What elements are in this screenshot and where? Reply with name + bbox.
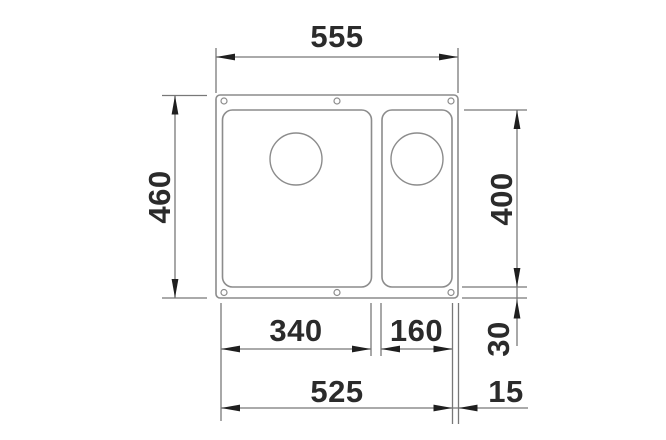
fixing-hole	[221, 290, 227, 296]
fixing-hole	[334, 98, 340, 104]
arrow-down-icon	[514, 268, 521, 287]
main-bowl	[223, 110, 372, 287]
dimension-arrows	[172, 54, 521, 412]
dimension-lines	[162, 48, 528, 424]
arrow-right-icon	[352, 346, 371, 353]
dim-label-overall-width: 555	[310, 19, 363, 54]
technical-drawing-canvas: 555 460 400 30 340 160 525 15	[0, 0, 666, 440]
fixing-hole	[448, 98, 454, 104]
arrow-right-icon	[439, 54, 458, 61]
dim-label-edge-offset-vertical: 30	[481, 321, 516, 356]
arrow-up-icon	[514, 300, 521, 319]
arrow-left-icon	[459, 405, 478, 412]
arrow-up-icon	[172, 96, 179, 115]
fixing-hole	[448, 290, 454, 296]
arrow-left-icon	[221, 405, 240, 412]
main-bowl-drain-hole	[270, 133, 322, 185]
sink-dimension-diagram: 555 460 400 30 340 160 525 15	[0, 0, 666, 440]
arrow-down-icon	[172, 279, 179, 298]
dimension-labels: 555 460 400 30 340 160 525 15	[142, 19, 524, 409]
arrow-up-icon	[514, 110, 521, 129]
arrow-left-icon	[221, 346, 240, 353]
fixing-hole	[221, 98, 227, 104]
fixing-hole	[334, 290, 340, 296]
arrow-right-icon	[434, 405, 453, 412]
small-bowl	[382, 110, 452, 287]
arrow-left-icon	[216, 54, 235, 61]
dim-label-bowl-length: 400	[484, 172, 519, 225]
sink-outer-rim	[216, 95, 458, 298]
dim-label-edge-offset-horizontal: 15	[488, 374, 523, 409]
dim-label-main-bowl-width: 340	[269, 313, 322, 348]
dim-label-small-bowl-width: 160	[390, 313, 443, 348]
dim-label-overall-depth: 460	[142, 170, 177, 223]
sink-drawing	[216, 95, 458, 298]
small-bowl-drain-hole	[391, 133, 443, 185]
dim-label-bowls-total-width: 525	[310, 374, 363, 409]
